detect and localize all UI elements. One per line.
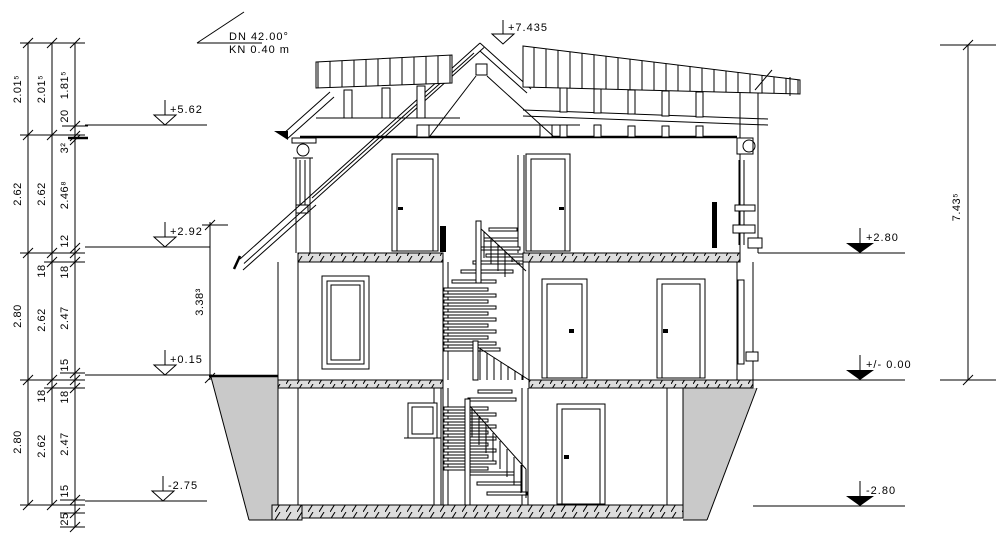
earth-left <box>209 376 278 520</box>
svg-text:2.62: 2.62 <box>36 434 48 457</box>
svg-text:15: 15 <box>59 484 71 497</box>
earth-right <box>683 388 757 520</box>
elevation-marker-left-562: +5.62 <box>85 100 207 125</box>
svg-text:2.01⁵: 2.01⁵ <box>36 75 48 103</box>
window-ground-floor <box>322 276 369 369</box>
dimension-chain-left: 2.01⁵ 2.62 2.80 2.80 2.01⁵ 2.62 18 2.62 … <box>12 38 88 532</box>
svg-text:15: 15 <box>59 358 71 371</box>
door-basement <box>557 404 605 504</box>
svg-text:+2.92: +2.92 <box>170 226 203 238</box>
svg-text:2.47: 2.47 <box>59 306 71 329</box>
svg-text:2.80: 2.80 <box>12 304 24 327</box>
roof <box>234 43 800 270</box>
staircase <box>443 221 529 505</box>
elevation-marker-right-000: +/- 0.00 <box>753 355 912 380</box>
elevation-marker-ridge: +7.435 <box>492 20 548 44</box>
window-right-slot <box>738 280 758 364</box>
roof-eave-label: KN 0.40 m <box>229 44 290 56</box>
elevation-marker-left-015: +0.15 <box>85 350 212 375</box>
door-ground-right <box>657 279 705 378</box>
roof-pitch-label: DN 42.00° <box>229 31 289 43</box>
elevation-marker-left-minus275: -2.75 <box>85 476 207 501</box>
svg-text:3²: 3² <box>59 143 71 154</box>
svg-text:2.62: 2.62 <box>36 182 48 205</box>
window-basement <box>404 403 441 438</box>
svg-text:2.47: 2.47 <box>59 432 71 455</box>
svg-text:2.01⁵: 2.01⁵ <box>12 75 24 103</box>
door-attic-left <box>392 154 438 251</box>
svg-text:+5.62: +5.62 <box>170 104 203 116</box>
svg-text:+2.80: +2.80 <box>866 232 899 244</box>
ridge-level-label: +7.435 <box>508 22 548 34</box>
elevation-marker-right-280: +2.80 <box>758 228 905 253</box>
svg-text:2.62: 2.62 <box>36 308 48 331</box>
dimension-overall-height: 7.43⁵ <box>940 40 996 385</box>
svg-text:7.43⁵: 7.43⁵ <box>951 193 963 221</box>
door-ground-left <box>542 279 587 378</box>
building-section-drawing: DN 42.00° KN 0.40 m +7.435 +5.62 +2.92 +… <box>0 0 1000 551</box>
roof-pitch-note: DN 42.00° KN 0.40 m <box>197 12 290 56</box>
svg-text:2.62: 2.62 <box>12 182 24 205</box>
svg-text:3.38³: 3.38³ <box>194 288 206 316</box>
section-svg: DN 42.00° KN 0.40 m +7.435 +5.62 +2.92 +… <box>0 0 1000 551</box>
svg-text:+0.15: +0.15 <box>170 354 203 366</box>
elevation-marker-right-minus280: -2.80 <box>753 481 905 506</box>
svg-text:18: 18 <box>59 265 71 278</box>
svg-text:12: 12 <box>59 234 71 247</box>
svg-text:-2.75: -2.75 <box>168 480 198 492</box>
svg-text:+/- 0.00: +/- 0.00 <box>866 359 912 371</box>
svg-text:-2.80: -2.80 <box>866 485 896 497</box>
svg-text:18: 18 <box>59 390 71 403</box>
svg-text:2.80: 2.80 <box>12 430 24 453</box>
elevation-marker-left-292: +2.92 <box>85 222 210 247</box>
svg-text:2.46⁸: 2.46⁸ <box>59 181 71 210</box>
svg-text:25: 25 <box>59 512 71 525</box>
svg-text:18: 18 <box>36 389 48 402</box>
svg-text:20: 20 <box>59 109 71 122</box>
svg-text:18: 18 <box>36 264 48 277</box>
door-attic-right <box>526 154 570 251</box>
svg-text:1.81⁵: 1.81⁵ <box>59 71 71 99</box>
